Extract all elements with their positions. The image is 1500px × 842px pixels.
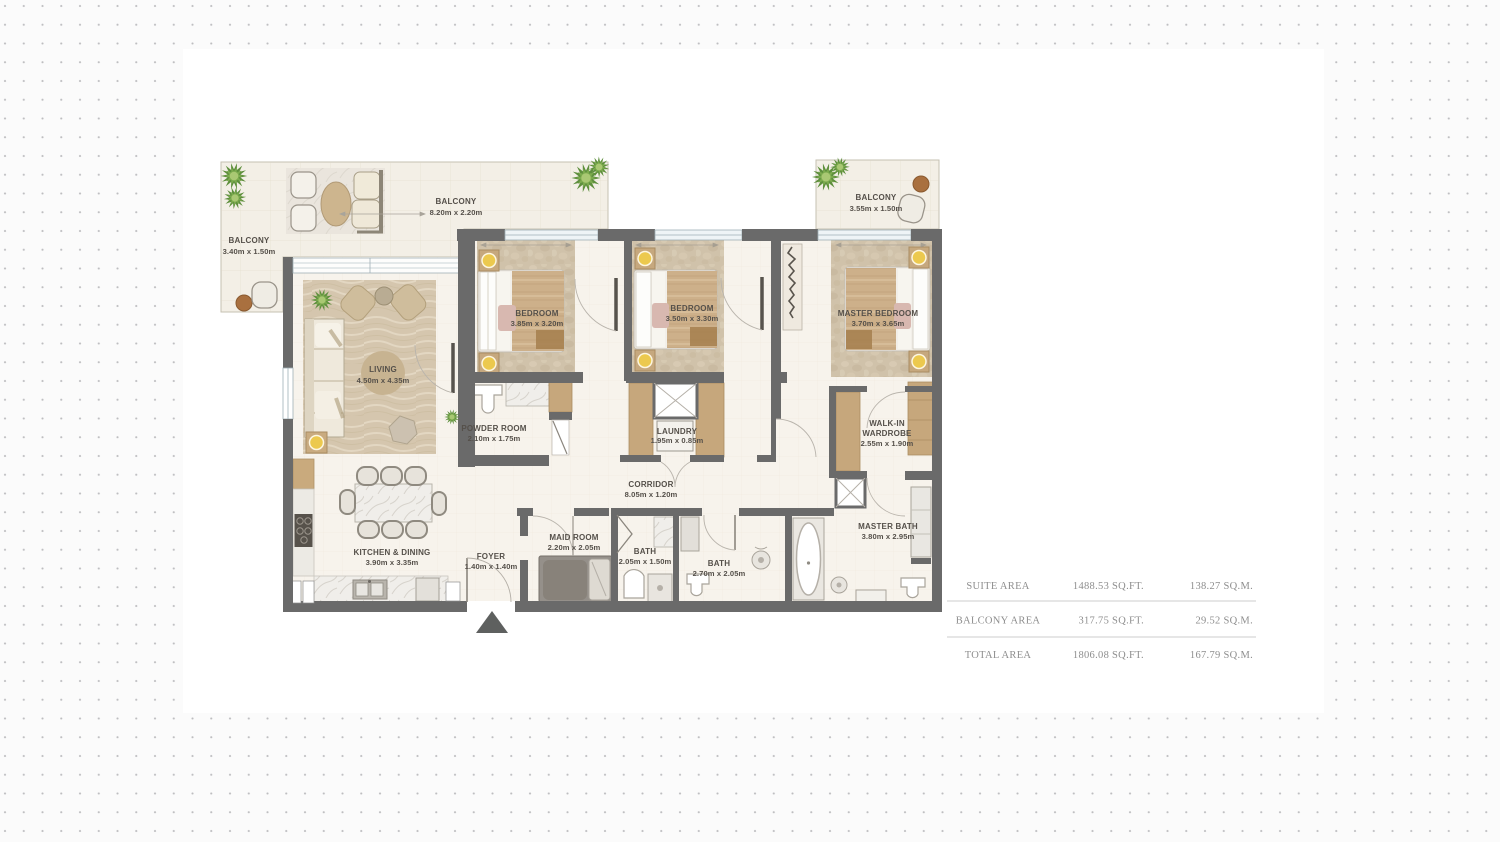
svg-text:BALCONY: BALCONY <box>229 236 270 245</box>
svg-text:KITCHEN & DINING: KITCHEN & DINING <box>354 548 431 557</box>
svg-text:FOYER: FOYER <box>477 552 506 561</box>
svg-text:BALCONY AREA: BALCONY AREA <box>956 616 1041 627</box>
svg-text:4.50m x 4.35m: 4.50m x 4.35m <box>357 376 410 385</box>
svg-text:LAUNDRY: LAUNDRY <box>657 427 698 436</box>
svg-text:2.10m x 1.75m: 2.10m x 1.75m <box>468 434 521 443</box>
svg-text:2.05m x 1.50m: 2.05m x 1.50m <box>619 557 672 566</box>
svg-text:MAID ROOM: MAID ROOM <box>549 533 598 542</box>
svg-text:3.85m x 3.20m: 3.85m x 3.20m <box>511 319 564 328</box>
svg-text:3.90m x 3.35m: 3.90m x 3.35m <box>366 558 419 567</box>
svg-text:LIVING: LIVING <box>369 365 397 374</box>
svg-text:MASTER BEDROOM: MASTER BEDROOM <box>838 309 919 318</box>
svg-text:3.70m x 3.65m: 3.70m x 3.65m <box>852 319 905 328</box>
svg-text:2.55m x 1.90m: 2.55m x 1.90m <box>861 439 914 448</box>
svg-text:8.05m x 1.20m: 8.05m x 1.20m <box>625 490 678 499</box>
svg-text:BALCONY: BALCONY <box>436 197 477 206</box>
svg-text:MASTER BATH: MASTER BATH <box>858 522 918 531</box>
svg-text:TOTAL AREA: TOTAL AREA <box>965 650 1032 661</box>
svg-text:WARDROBE: WARDROBE <box>862 429 912 438</box>
svg-text:WALK-IN: WALK-IN <box>869 419 905 428</box>
svg-text:BALCONY: BALCONY <box>856 193 897 202</box>
svg-text:1.95m x 0.85m: 1.95m x 0.85m <box>651 436 704 445</box>
svg-text:1488.53 SQ.FT.: 1488.53 SQ.FT. <box>1073 581 1144 592</box>
svg-text:CORRIDOR: CORRIDOR <box>628 480 673 489</box>
svg-text:167.79 SQ.M.: 167.79 SQ.M. <box>1190 650 1253 661</box>
svg-text:29.52 SQ.M.: 29.52 SQ.M. <box>1195 616 1253 627</box>
svg-text:SUITE AREA: SUITE AREA <box>966 581 1029 592</box>
svg-text:2.70m x 2.05m: 2.70m x 2.05m <box>693 569 746 578</box>
svg-text:BATH: BATH <box>634 547 656 556</box>
svg-text:3.80m x 2.95m: 3.80m x 2.95m <box>862 532 915 541</box>
svg-text:8.20m x 2.20m: 8.20m x 2.20m <box>430 208 483 217</box>
svg-text:3.50m x 3.30m: 3.50m x 3.30m <box>666 314 719 323</box>
svg-text:BATH: BATH <box>708 559 730 568</box>
svg-text:138.27 SQ.M.: 138.27 SQ.M. <box>1190 581 1253 592</box>
svg-text:BEDROOM: BEDROOM <box>670 304 713 313</box>
svg-text:317.75 SQ.FT.: 317.75 SQ.FT. <box>1078 616 1144 627</box>
svg-text:3.40m x 1.50m: 3.40m x 1.50m <box>223 247 276 256</box>
svg-text:1.40m x 1.40m: 1.40m x 1.40m <box>465 562 518 571</box>
svg-text:2.20m x 2.05m: 2.20m x 2.05m <box>548 543 601 552</box>
svg-text:1806.08 SQ.FT.: 1806.08 SQ.FT. <box>1073 650 1144 661</box>
svg-text:3.55m x 1.50m: 3.55m x 1.50m <box>850 204 903 213</box>
svg-text:BEDROOM: BEDROOM <box>515 309 558 318</box>
svg-text:POWDER ROOM: POWDER ROOM <box>461 424 526 433</box>
